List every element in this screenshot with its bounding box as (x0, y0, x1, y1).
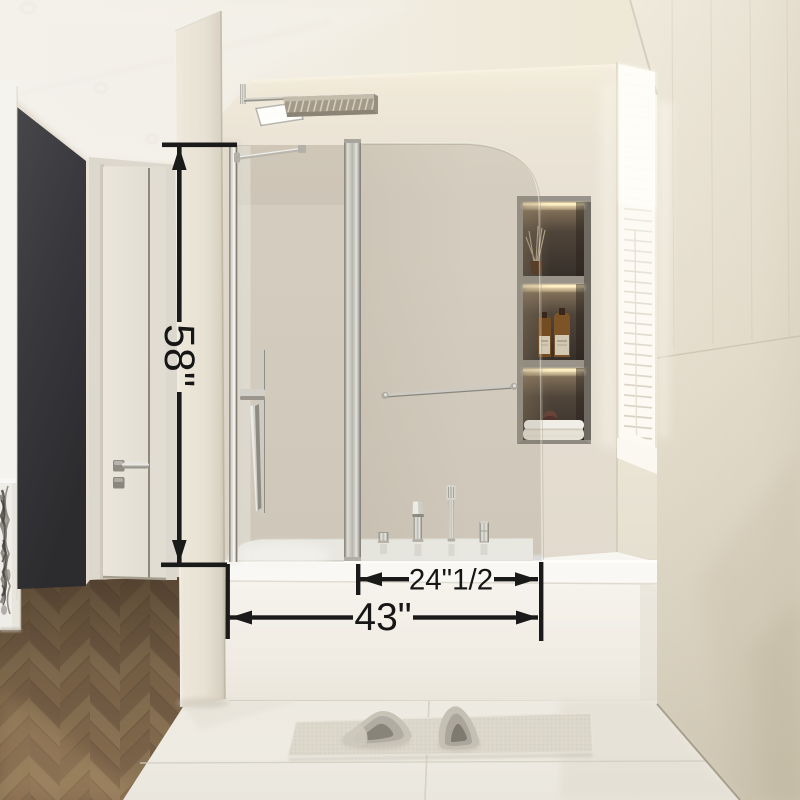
svg-text:58": 58" (155, 324, 203, 387)
svg-text:43": 43" (354, 596, 411, 639)
svg-text:24"1/2: 24"1/2 (409, 564, 493, 597)
